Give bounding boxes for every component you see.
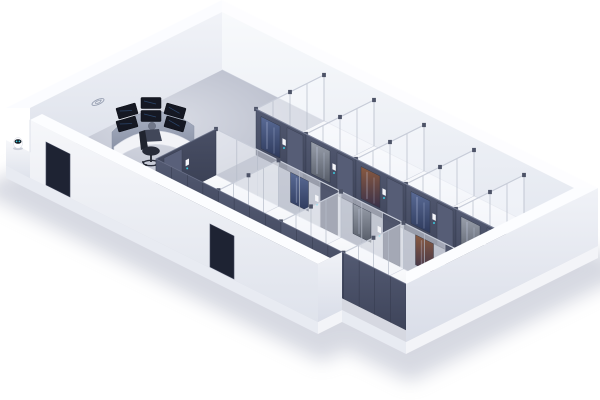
video-wall-monitor-icon bbox=[141, 98, 161, 109]
office-chair-seat bbox=[142, 146, 160, 155]
glass-post-cap-icon bbox=[338, 115, 342, 119]
glass-post-cap-icon bbox=[288, 90, 292, 94]
glass-post-cap-icon bbox=[277, 158, 281, 162]
glass-post-cap-icon bbox=[372, 98, 376, 102]
room-01-access-indicator-icon bbox=[283, 147, 285, 149]
room-02-access-indicator-icon bbox=[333, 172, 335, 174]
glass-post-cap-icon bbox=[522, 173, 526, 177]
glass-post-cap-icon bbox=[388, 140, 392, 144]
video-wall-monitor-icon bbox=[141, 111, 161, 122]
glass-post-cap-icon bbox=[247, 173, 251, 177]
glass-post-cap-icon bbox=[322, 73, 326, 77]
glass-post-cap-icon bbox=[372, 236, 376, 240]
glass-post-cap-icon bbox=[309, 204, 313, 208]
robot-mascot-icon bbox=[13, 138, 23, 151]
glass-post-cap-icon bbox=[438, 165, 442, 169]
glass-post-cap-icon bbox=[472, 148, 476, 152]
glass-post-cap-icon bbox=[339, 189, 343, 193]
glass-post-cap-icon bbox=[402, 221, 406, 225]
room-06-access-indicator-icon bbox=[186, 167, 188, 169]
glass-post-cap-icon bbox=[422, 123, 426, 127]
room-03-access-indicator-icon bbox=[383, 197, 385, 199]
operator-person bbox=[148, 122, 155, 129]
isometric-floorplan: 010203040506070809 bbox=[0, 0, 600, 400]
floorplan-scene: 010203040506070809 bbox=[0, 0, 600, 400]
step-wall bbox=[318, 252, 342, 322]
glass-post-cap-icon bbox=[488, 190, 492, 194]
room-04-access-indicator-icon bbox=[433, 222, 435, 224]
